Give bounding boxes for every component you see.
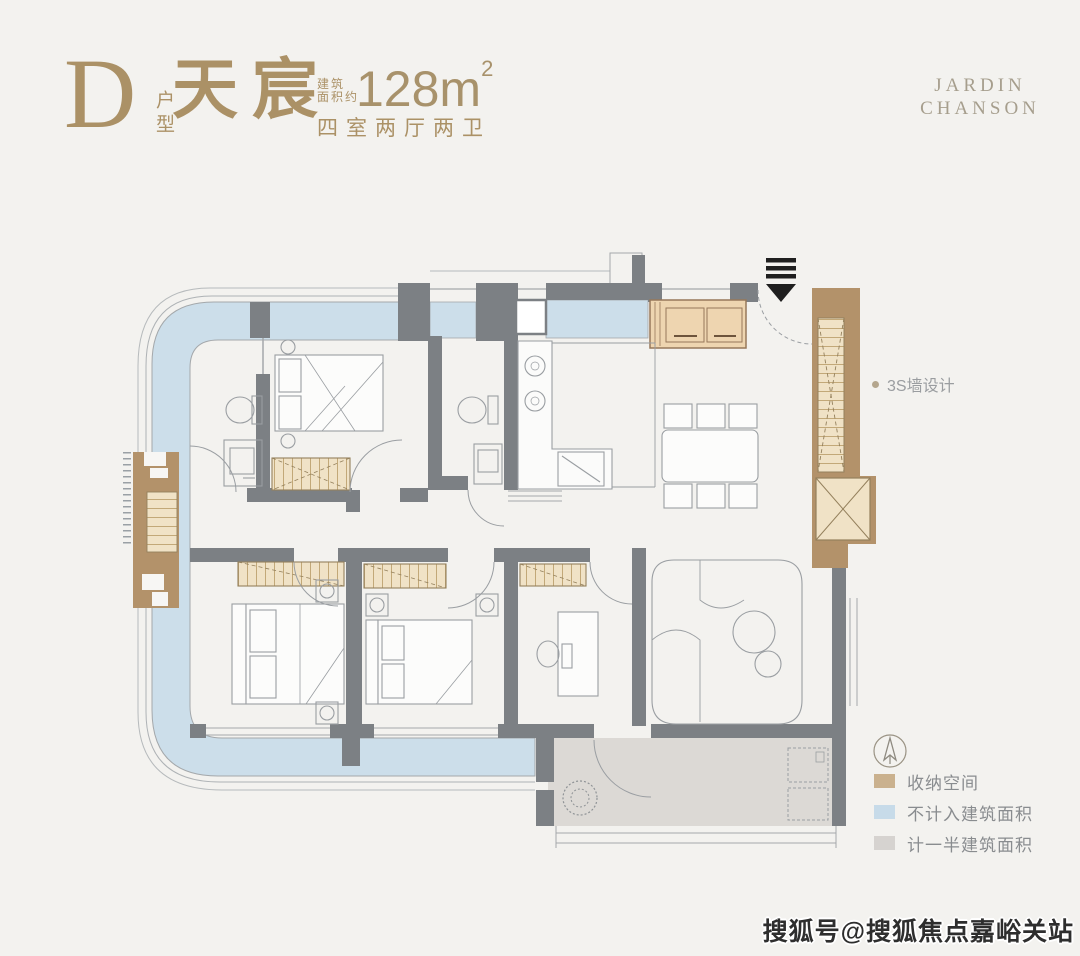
legend-label-storage: 收纳空间 (907, 769, 979, 794)
bath2-door-arc (468, 490, 504, 526)
balcony-band (127, 288, 648, 790)
balcony-door-arc (190, 446, 236, 492)
annotation-3s-label: 3S墙设计 (887, 372, 955, 396)
terrace (514, 724, 846, 848)
floorplan-page: D 户型 天宸 建筑 面积约 128m2 四室两厅两卫 JARDIN CHANS… (0, 0, 1080, 956)
sofa (652, 560, 802, 724)
desk (558, 612, 598, 696)
legend-swatch-storage (874, 774, 895, 788)
dining-set (662, 404, 758, 508)
dining-table (662, 430, 758, 482)
living-room (652, 560, 802, 724)
study-door-arc (590, 562, 632, 604)
legend-swatch-not-counted (874, 805, 895, 819)
entry-cabinet (650, 300, 746, 348)
chair (537, 641, 559, 667)
bedroom-3 (232, 562, 344, 724)
legend-item-not-counted: 不计入建筑面积 (874, 801, 1033, 823)
coffee-table (733, 611, 775, 653)
storage-cabinet-left (133, 452, 179, 608)
entry-marker-icon (766, 258, 796, 302)
master-suite (224, 340, 383, 490)
bed (378, 620, 472, 704)
entry (650, 258, 812, 348)
legend-item-storage: 收纳空间 (874, 770, 1033, 792)
entry-door-arc (758, 290, 812, 344)
master-door-arc (350, 440, 402, 492)
bedroom2-door-arc (448, 562, 494, 608)
bullet-dot-icon (872, 381, 879, 388)
annotation-3s: 3S墙设计 (872, 372, 955, 396)
bed-master (275, 355, 383, 431)
kitchen (518, 341, 655, 489)
legend-item-half-area: 计一半建筑面积 (874, 832, 1033, 854)
toilet (226, 397, 254, 423)
watermark: 搜狐号@搜狐焦点嘉峪关站 (763, 912, 1074, 948)
bathroom-2 (458, 396, 502, 484)
bed (246, 604, 344, 704)
side-table (755, 651, 781, 677)
toilet (458, 397, 486, 423)
legend-swatch-half-area (874, 836, 895, 850)
bedroom-2 (364, 564, 498, 704)
study (520, 564, 598, 696)
legend-label-not-counted: 不计入建筑面积 (907, 800, 1033, 825)
legend-label-half-area: 计一半建筑面积 (907, 831, 1033, 856)
storage-wall-right (812, 288, 876, 738)
legend: 收纳空间 不计入建筑面积 计一半建筑面积 (874, 770, 1033, 863)
